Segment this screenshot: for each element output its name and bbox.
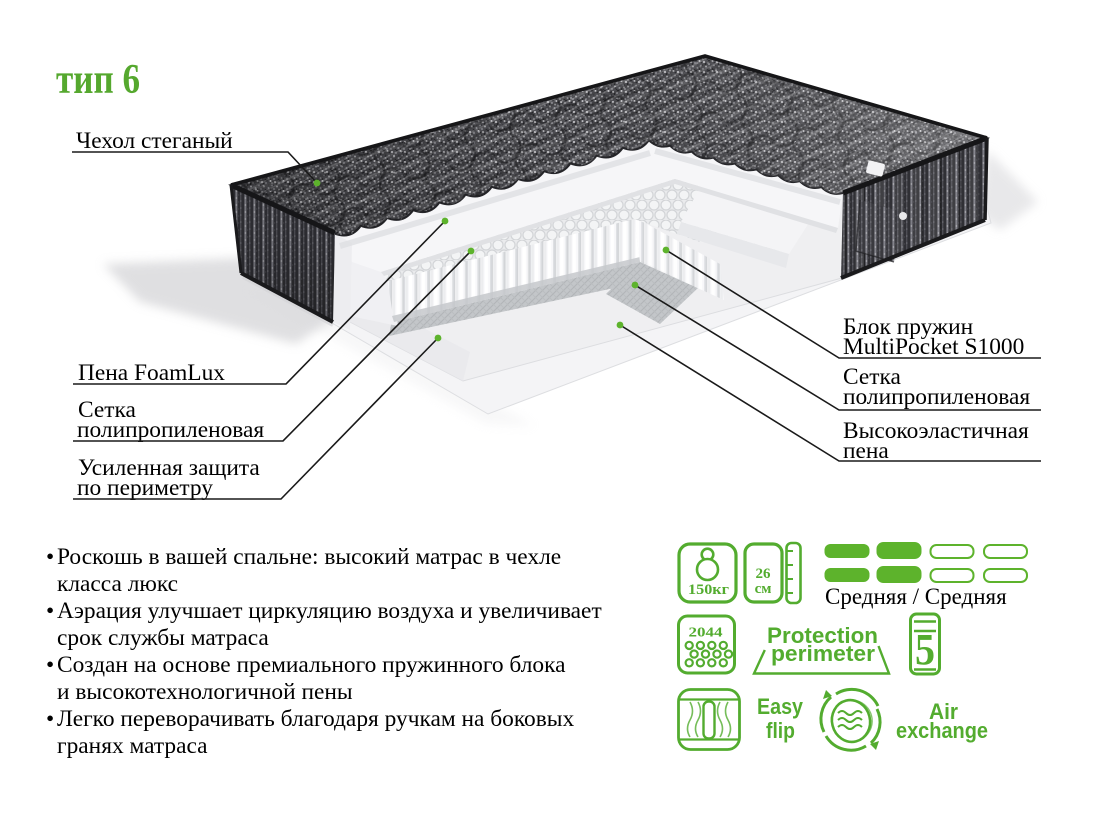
svg-text:exchange: exchange [896,718,988,743]
svg-text:150кг: 150кг [688,582,729,598]
svg-text:Средняя / Средняя: Средняя / Средняя [825,584,1007,609]
svg-text:Создан на основе премиального: Создан на основе премиального пружинного… [57,652,566,678]
svg-text:гранях матраса: гранях матраса [57,733,208,759]
svg-text:Чехол стеганый: Чехол стеганый [76,128,233,154]
svg-text:по периметру: по периметру [77,475,213,501]
svg-text:2044: 2044 [689,626,723,641]
svg-text:см: см [755,581,772,597]
svg-text:и высокотехнологичной пены: и высокотехнологичной пены [57,679,353,705]
svg-text:Пена FoamLux: Пена FoamLux [78,360,225,386]
svg-text:perimeter: perimeter [771,641,875,666]
svg-text:тип 6: тип 6 [56,57,140,103]
svg-text:класса люкс: класса люкс [57,571,178,597]
svg-text:пена: пена [843,438,889,464]
svg-text:•: • [46,544,54,570]
svg-text:полипропиленовая: полипропиленовая [77,417,264,443]
svg-text:5: 5 [915,625,935,674]
svg-text:•: • [46,706,54,732]
svg-text:flip: flip [766,718,795,743]
svg-text:•: • [46,598,54,624]
svg-text:Easy: Easy [757,694,804,719]
svg-text:полипропиленовая: полипропиленовая [843,384,1030,410]
svg-text:Роскошь в вашей спальне: высок: Роскошь в вашей спальне: высокий матрас … [57,544,561,570]
svg-text:MultiPocket S1000: MultiPocket S1000 [843,334,1024,360]
svg-text:Легко переворачивать благодаря: Легко переворачивать благодаря ручкам на… [57,706,574,732]
svg-text:•: • [46,652,54,678]
svg-text:Аэрация улучшает циркуляцию во: Аэрация улучшает циркуляцию воздуха и ув… [57,598,602,624]
svg-text:срок службы матраса: срок службы матраса [57,625,269,651]
svg-text:26: 26 [756,566,772,582]
